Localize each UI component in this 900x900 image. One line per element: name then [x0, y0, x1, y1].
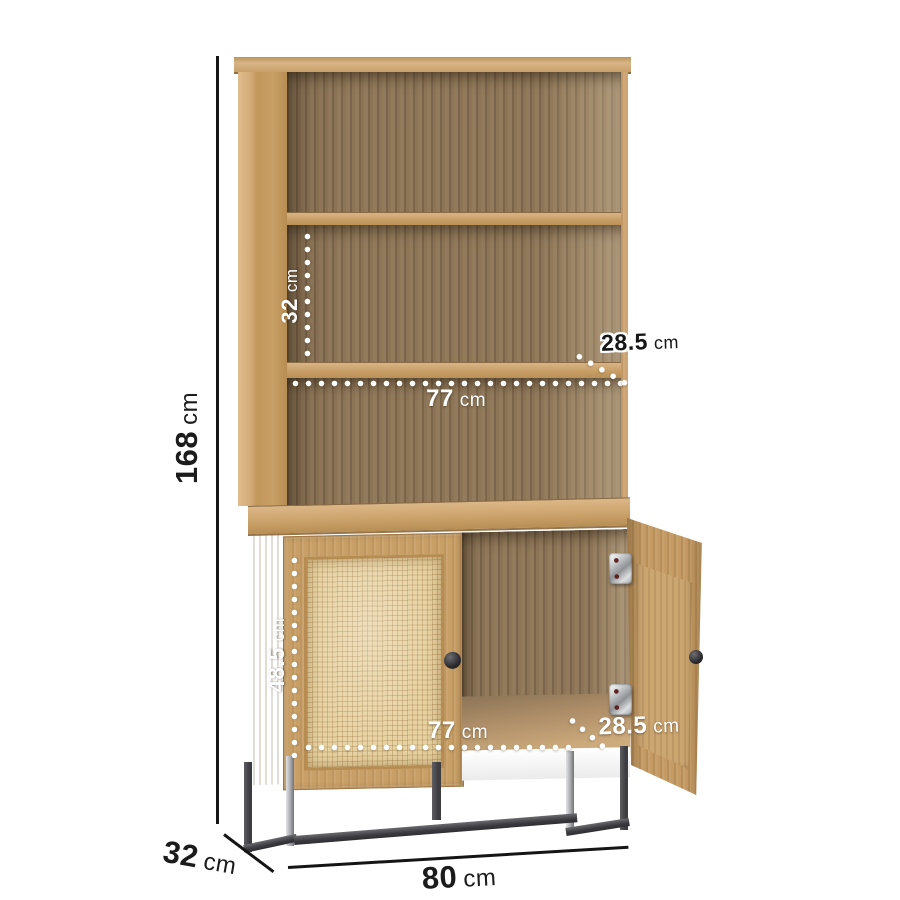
- shelf-width-value: 77: [426, 385, 454, 412]
- shelf-width-unit: cm: [460, 390, 486, 411]
- shelf-opening-2: [287, 225, 621, 362]
- overall-depth-unit: cm: [201, 848, 238, 880]
- bookcase-right-edge: [621, 72, 628, 506]
- shelf-height-label: 32cm: [277, 268, 303, 323]
- overall-depth-label: 32cm: [160, 834, 240, 882]
- product-dimension-image: 168cm 32cm 80cm 32cm 28.5cm 77cm 48.5cm …: [0, 0, 900, 900]
- cabinet-depth-label: 28.5cm: [598, 711, 680, 742]
- shelf-height-value: 32: [277, 298, 302, 323]
- rattan-door-closed: [283, 533, 464, 791]
- left-door-knob: [444, 652, 461, 669]
- overall-height-label: 168cm: [169, 392, 205, 484]
- rattan-panel: [304, 554, 444, 771]
- overall-height-value: 168: [169, 431, 204, 484]
- overall-width-unit: cm: [463, 864, 497, 893]
- shelf-height-dotted-line: [304, 228, 311, 362]
- cabinet-width-dotted-line: [300, 744, 577, 751]
- hinge-bottom: [609, 684, 632, 715]
- base-middle-leg: [432, 762, 441, 820]
- cabinet-depth-value: 28.5: [598, 712, 648, 741]
- cabinet-depth-unit: cm: [653, 716, 680, 738]
- shelf-depth-value: 28.5: [601, 328, 649, 356]
- overall-height-unit: cm: [176, 392, 203, 425]
- overall-depth-value: 32: [160, 834, 201, 875]
- shelf-height-unit: cm: [282, 268, 301, 292]
- base-left-leg-back: [244, 762, 252, 852]
- height-dimension-line: [216, 56, 219, 824]
- cabinet-width-value: 77: [428, 717, 456, 744]
- base-left-leg-front: [286, 756, 294, 846]
- cabinet-height-dotted-line: [291, 552, 298, 758]
- hinge-top: [609, 553, 632, 584]
- cabinet-width-label: 77cm: [428, 717, 488, 745]
- cabinet-height-value: 48.5: [264, 647, 289, 692]
- cabinet-height-unit: cm: [269, 618, 288, 642]
- shelf-depth-label: 28.5cm: [601, 327, 680, 357]
- shelf-depth-unit: cm: [654, 332, 680, 353]
- cabinet-underside-gap: [462, 747, 630, 781]
- overall-width-value: 80: [421, 859, 458, 896]
- cabinet-height-label: 48.5cm: [264, 618, 290, 693]
- shelf-opening-1: [287, 72, 621, 212]
- cabinet-width-unit: cm: [462, 722, 488, 743]
- open-door-knob: [689, 650, 703, 664]
- overall-width-label: 80cm: [421, 857, 497, 897]
- shelf-width-label: 77cm: [426, 385, 486, 413]
